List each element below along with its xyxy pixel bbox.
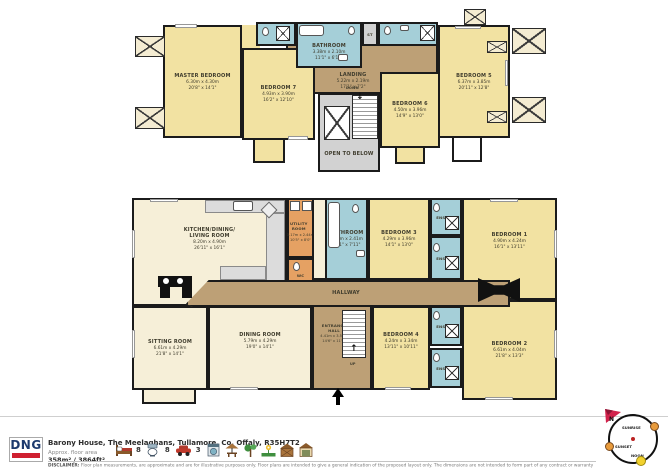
bathroom-count: 8 xyxy=(165,446,170,454)
toilet-fixture xyxy=(433,203,440,212)
room-size-imperial: 20'8" x 14'1" xyxy=(174,86,230,91)
hob-ring xyxy=(177,278,183,284)
dng-logo-text: DNG xyxy=(10,438,42,453)
room-bedroom-6: BEDROOM 6 4.50m x 3.96m 14'9" x 13'0" xyxy=(380,72,440,148)
room-size-metric: 8.20m x 4.90m xyxy=(181,240,239,245)
shower-fixture xyxy=(420,25,435,41)
room-size-metric: 4.50m x 3.96m xyxy=(392,108,428,113)
room-sitting: SITTING ROOM 6.61m x 4.29m 21'8" x 14'1" xyxy=(132,306,208,390)
chimney-hatch xyxy=(135,36,165,57)
sink-fixture xyxy=(400,25,409,31)
shed-icon xyxy=(279,443,295,457)
window xyxy=(132,230,135,258)
toilet-fixture xyxy=(433,243,440,252)
room-bedroom-3: BEDROOM 3 4.29m x 3.96m 14'1" x 13'0" xyxy=(368,198,430,280)
room-name: LANDING xyxy=(318,72,388,78)
room-size-imperial: 20'11" x 12'8" xyxy=(456,86,492,91)
room-label: BEDROOM 5 6.37m x 3.85m 20'11" x 12'8" xyxy=(456,73,492,91)
room-label: BEDROOM 3 4.29m x 3.96m 14'1" x 13'0" xyxy=(381,230,417,248)
toilet-fixture xyxy=(348,26,355,35)
room-size-imperial: 14'1" x 13'0" xyxy=(381,243,417,248)
entrance-arrow-stem xyxy=(336,397,340,405)
room-name: WC xyxy=(297,273,304,278)
room-bedroom-2: BEDROOM 2 6.61m x 4.04m 21'8" x 13'3" xyxy=(462,300,557,400)
trees-icon xyxy=(243,443,258,457)
room-label: MASTER BEDROOM 6.30m x 4.30m 20'8" x 14'… xyxy=(174,73,230,91)
entrance-arrow-head xyxy=(332,388,344,397)
room-name: BEDROOM 6 xyxy=(392,101,428,107)
window xyxy=(288,136,308,140)
bathroom-icon xyxy=(146,443,161,457)
room-size-metric: 4.93m x 3.90m xyxy=(261,92,297,97)
stairs-down-label: DOWN xyxy=(346,86,359,90)
window xyxy=(175,24,197,28)
room-label: KITCHEN/DINING/ LIVING ROOM 8.20m x 4.90… xyxy=(181,227,239,251)
bed-icon xyxy=(116,443,132,457)
disclaimer: DISCLAIMER: Floor plan measurements, are… xyxy=(48,461,596,470)
kitchen-sink-fixture xyxy=(233,201,253,211)
room-name: BEDROOM 5 xyxy=(456,73,492,79)
dng-logo-red-strip xyxy=(12,453,40,458)
room-bedroom-4: BEDROOM 4 4.24m x 3.34m 13'11" x 10'11" xyxy=(372,306,430,390)
chimney-hatch xyxy=(135,107,165,129)
room-label: UTILITY ROOM 3.17m x 2.44m 10'5" x 8'0" xyxy=(287,222,314,241)
toilet-fixture xyxy=(384,26,391,35)
car-count: 3 xyxy=(196,446,201,454)
sun-center-dot xyxy=(631,437,635,441)
room-name: BEDROOM 7 xyxy=(261,85,297,91)
window xyxy=(485,397,513,400)
stairwell-void-hatch xyxy=(324,106,350,140)
room-size-imperial: 19'0" x 14'1" xyxy=(239,345,281,350)
stairs-up-label: UP xyxy=(350,362,355,366)
room-size-imperial: 16'1" x 13'11" xyxy=(492,245,528,250)
range-cooker xyxy=(182,287,192,298)
window xyxy=(554,330,557,358)
sink-fixture xyxy=(338,54,348,61)
dng-logo: DNG xyxy=(9,437,43,462)
room-label: BEDROOM 1 4.90m x 4.24m 16'1" x 13'11" xyxy=(492,232,528,250)
car-icon xyxy=(175,444,192,457)
washing-machine-icon xyxy=(206,443,221,457)
bedroom-7-bay xyxy=(253,138,285,163)
chimney-hatch xyxy=(464,9,486,25)
window xyxy=(150,199,178,202)
window xyxy=(490,199,518,202)
room-size-metric: 6.30m x 4.30m xyxy=(174,80,230,85)
room-size-imperial: 10'5" x 8'0" xyxy=(287,238,314,242)
floorplan-page: LANDING 5.22m x 2.19m 17'1" x 7'2" MASTE… xyxy=(0,0,668,472)
shower-fixture xyxy=(445,324,459,338)
washing-machine-fixture xyxy=(290,201,300,211)
entrance-arrow-icon xyxy=(332,388,344,405)
toilet-fixture xyxy=(433,311,440,320)
window xyxy=(385,387,411,390)
wardrobe-hatch xyxy=(487,41,507,53)
window xyxy=(455,26,481,29)
disclaimer-title: DISCLAIMER: xyxy=(48,463,79,468)
room-hallway: HALLWAY xyxy=(186,280,510,307)
room-size-imperial: 13'11" x 10'11" xyxy=(383,345,419,350)
room-name: BEDROOM 2 xyxy=(492,341,528,347)
amenity-icon-row: 8 8 3 xyxy=(116,443,314,457)
disclaimer-body: Floor plan measurements, are approximate… xyxy=(81,463,593,468)
shower-fixture xyxy=(276,26,290,41)
room-label: WC xyxy=(297,273,304,278)
disclaimer-text: DISCLAIMER: Floor plan measurements, are… xyxy=(48,463,596,468)
room-size-imperial: 16'2" x 12'10" xyxy=(261,98,297,103)
room-size-metric: 6.61m x 4.04m xyxy=(492,348,528,353)
room-size-metric: 6.37m x 3.85m xyxy=(456,80,492,85)
window xyxy=(230,387,258,390)
shower-fixture xyxy=(445,216,459,230)
room-name: HALLWAY xyxy=(316,290,376,296)
room-name: BATHROOM xyxy=(312,43,346,49)
room-size-imperial: 14'9" x 13'0" xyxy=(392,114,428,119)
garage-icon xyxy=(298,443,314,457)
sink-fixture xyxy=(356,250,365,257)
shower-fixture xyxy=(445,366,459,380)
room-name: MASTER BEDROOM xyxy=(174,73,230,79)
room-label: DINING ROOM 5.79m x 4.29m 19'0" x 14'1" xyxy=(239,332,281,350)
room-size-metric: 4.90m x 4.24m xyxy=(492,239,528,244)
room-size-metric: 5.79m x 4.29m xyxy=(239,339,281,344)
room-size-metric: 3.17m x 2.44m xyxy=(287,233,314,237)
sitting-bay-window xyxy=(142,388,196,404)
room-size-metric: 4.29m x 3.96m xyxy=(381,237,417,242)
room-name: BEDROOM 3 xyxy=(381,230,417,236)
sunrise-dot xyxy=(650,422,659,431)
room-label: BEDROOM 7 4.93m x 3.90m 16'2" x 12'10" xyxy=(261,85,297,103)
room-name: UTILITY ROOM xyxy=(287,222,311,231)
room-name: ST xyxy=(367,32,373,37)
room-name: BEDROOM 1 xyxy=(492,232,528,238)
chimney-hatch xyxy=(512,97,546,123)
toilet-fixture xyxy=(433,353,440,362)
room-dining: DINING ROOM 5.79m x 4.29m 19'0" x 14'1" xyxy=(208,306,312,390)
room-name: BEDROOM 4 xyxy=(383,332,419,338)
hob-ring xyxy=(163,278,169,284)
room-label: BEDROOM 2 6.61m x 4.04m 21'8" x 13'3" xyxy=(492,341,528,359)
room-label: HALLWAY xyxy=(316,290,376,296)
wardrobe-hatch xyxy=(487,111,507,123)
shower-fixture xyxy=(445,256,459,270)
window xyxy=(132,330,135,358)
sun-path-diagram: N SUNRISE SUNSET NOON xyxy=(604,408,666,470)
room-size-imperial: 21'8" x 14'1" xyxy=(148,352,192,357)
bed-count: 8 xyxy=(136,446,141,454)
window xyxy=(505,60,508,86)
room-size-imperial: 21'8" x 13'3" xyxy=(492,354,528,359)
room-label: ST xyxy=(367,32,373,37)
bedroom-5-porch xyxy=(452,136,482,162)
room-size-metric: 6.61m x 4.29m xyxy=(148,346,192,351)
range-cooker xyxy=(160,287,170,298)
bedroom-6-bay xyxy=(395,146,425,164)
toilet-fixture xyxy=(293,262,300,271)
room-label: BEDROOM 4 4.24m x 3.34m 13'11" x 10'11" xyxy=(383,332,419,350)
room-name: DINING ROOM xyxy=(239,332,281,338)
window xyxy=(554,230,557,258)
sunrise-label: SUNRISE xyxy=(622,425,641,430)
footer-divider xyxy=(0,416,668,417)
garden-icon xyxy=(261,443,276,457)
stairs-down-arrow-icon: ↓ xyxy=(356,92,364,102)
noon-dot xyxy=(636,456,646,466)
room-size-metric: 5.22m x 2.19m xyxy=(318,79,388,84)
room-name: SITTING ROOM xyxy=(148,339,192,345)
room-label: OPEN TO BELOW xyxy=(322,151,376,157)
room-label: SITTING ROOM 6.61m x 4.29m 21'8" x 14'1" xyxy=(148,339,192,357)
north-label: N xyxy=(609,416,614,423)
room-label: BEDROOM 6 4.50m x 3.96m 14'9" x 13'0" xyxy=(392,101,428,119)
toilet-fixture xyxy=(352,204,359,213)
room-storage: ST xyxy=(362,22,378,46)
room-name: OPEN TO BELOW xyxy=(322,151,376,157)
chimney-hatch xyxy=(512,28,546,54)
toilet-fixture xyxy=(262,27,269,36)
bath-fixture xyxy=(299,25,324,36)
room-size-metric: 4.24m x 3.34m xyxy=(383,339,419,344)
sunset-label: SUNSET xyxy=(615,444,632,449)
patio-icon xyxy=(224,443,240,457)
kitchen-island xyxy=(220,266,266,280)
room-master-bedroom: MASTER BEDROOM 6.30m x 4.30m 20'8" x 14'… xyxy=(163,25,242,138)
stairs-up-arrow-icon: ↑ xyxy=(350,344,358,354)
room-name: KITCHEN/DINING/ LIVING ROOM xyxy=(181,227,239,239)
sunset-dot xyxy=(605,442,614,451)
bath-fixture xyxy=(328,202,340,248)
room-size-imperial: 26'11" x 16'1" xyxy=(181,246,239,251)
dryer-fixture xyxy=(302,201,312,211)
